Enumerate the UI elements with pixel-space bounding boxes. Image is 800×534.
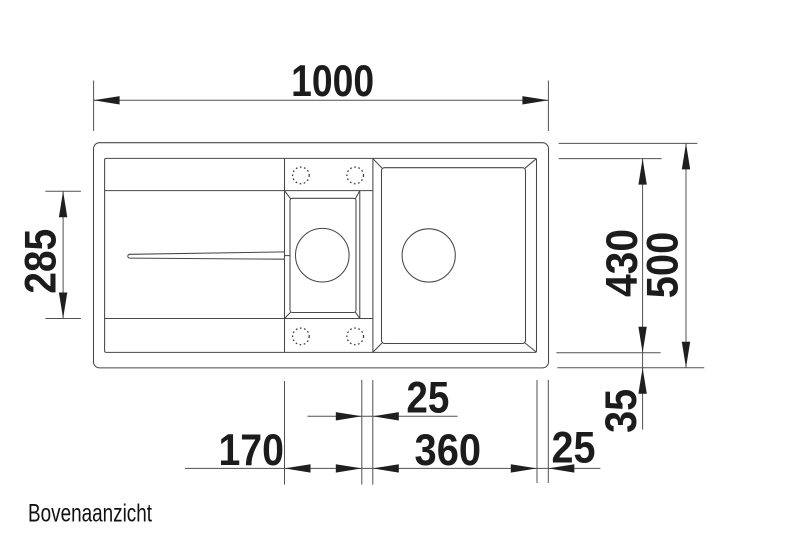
svg-text:285: 285 (17, 229, 66, 294)
svg-text:170: 170 (218, 426, 284, 475)
svg-text:25: 25 (406, 374, 449, 423)
svg-text:1000: 1000 (291, 57, 374, 106)
svg-text:35: 35 (597, 389, 646, 433)
svg-text:25: 25 (552, 424, 596, 473)
svg-text:500: 500 (639, 232, 688, 299)
svg-text:360: 360 (415, 426, 482, 475)
svg-text:Bovenaanzicht: Bovenaanzicht (28, 500, 152, 528)
